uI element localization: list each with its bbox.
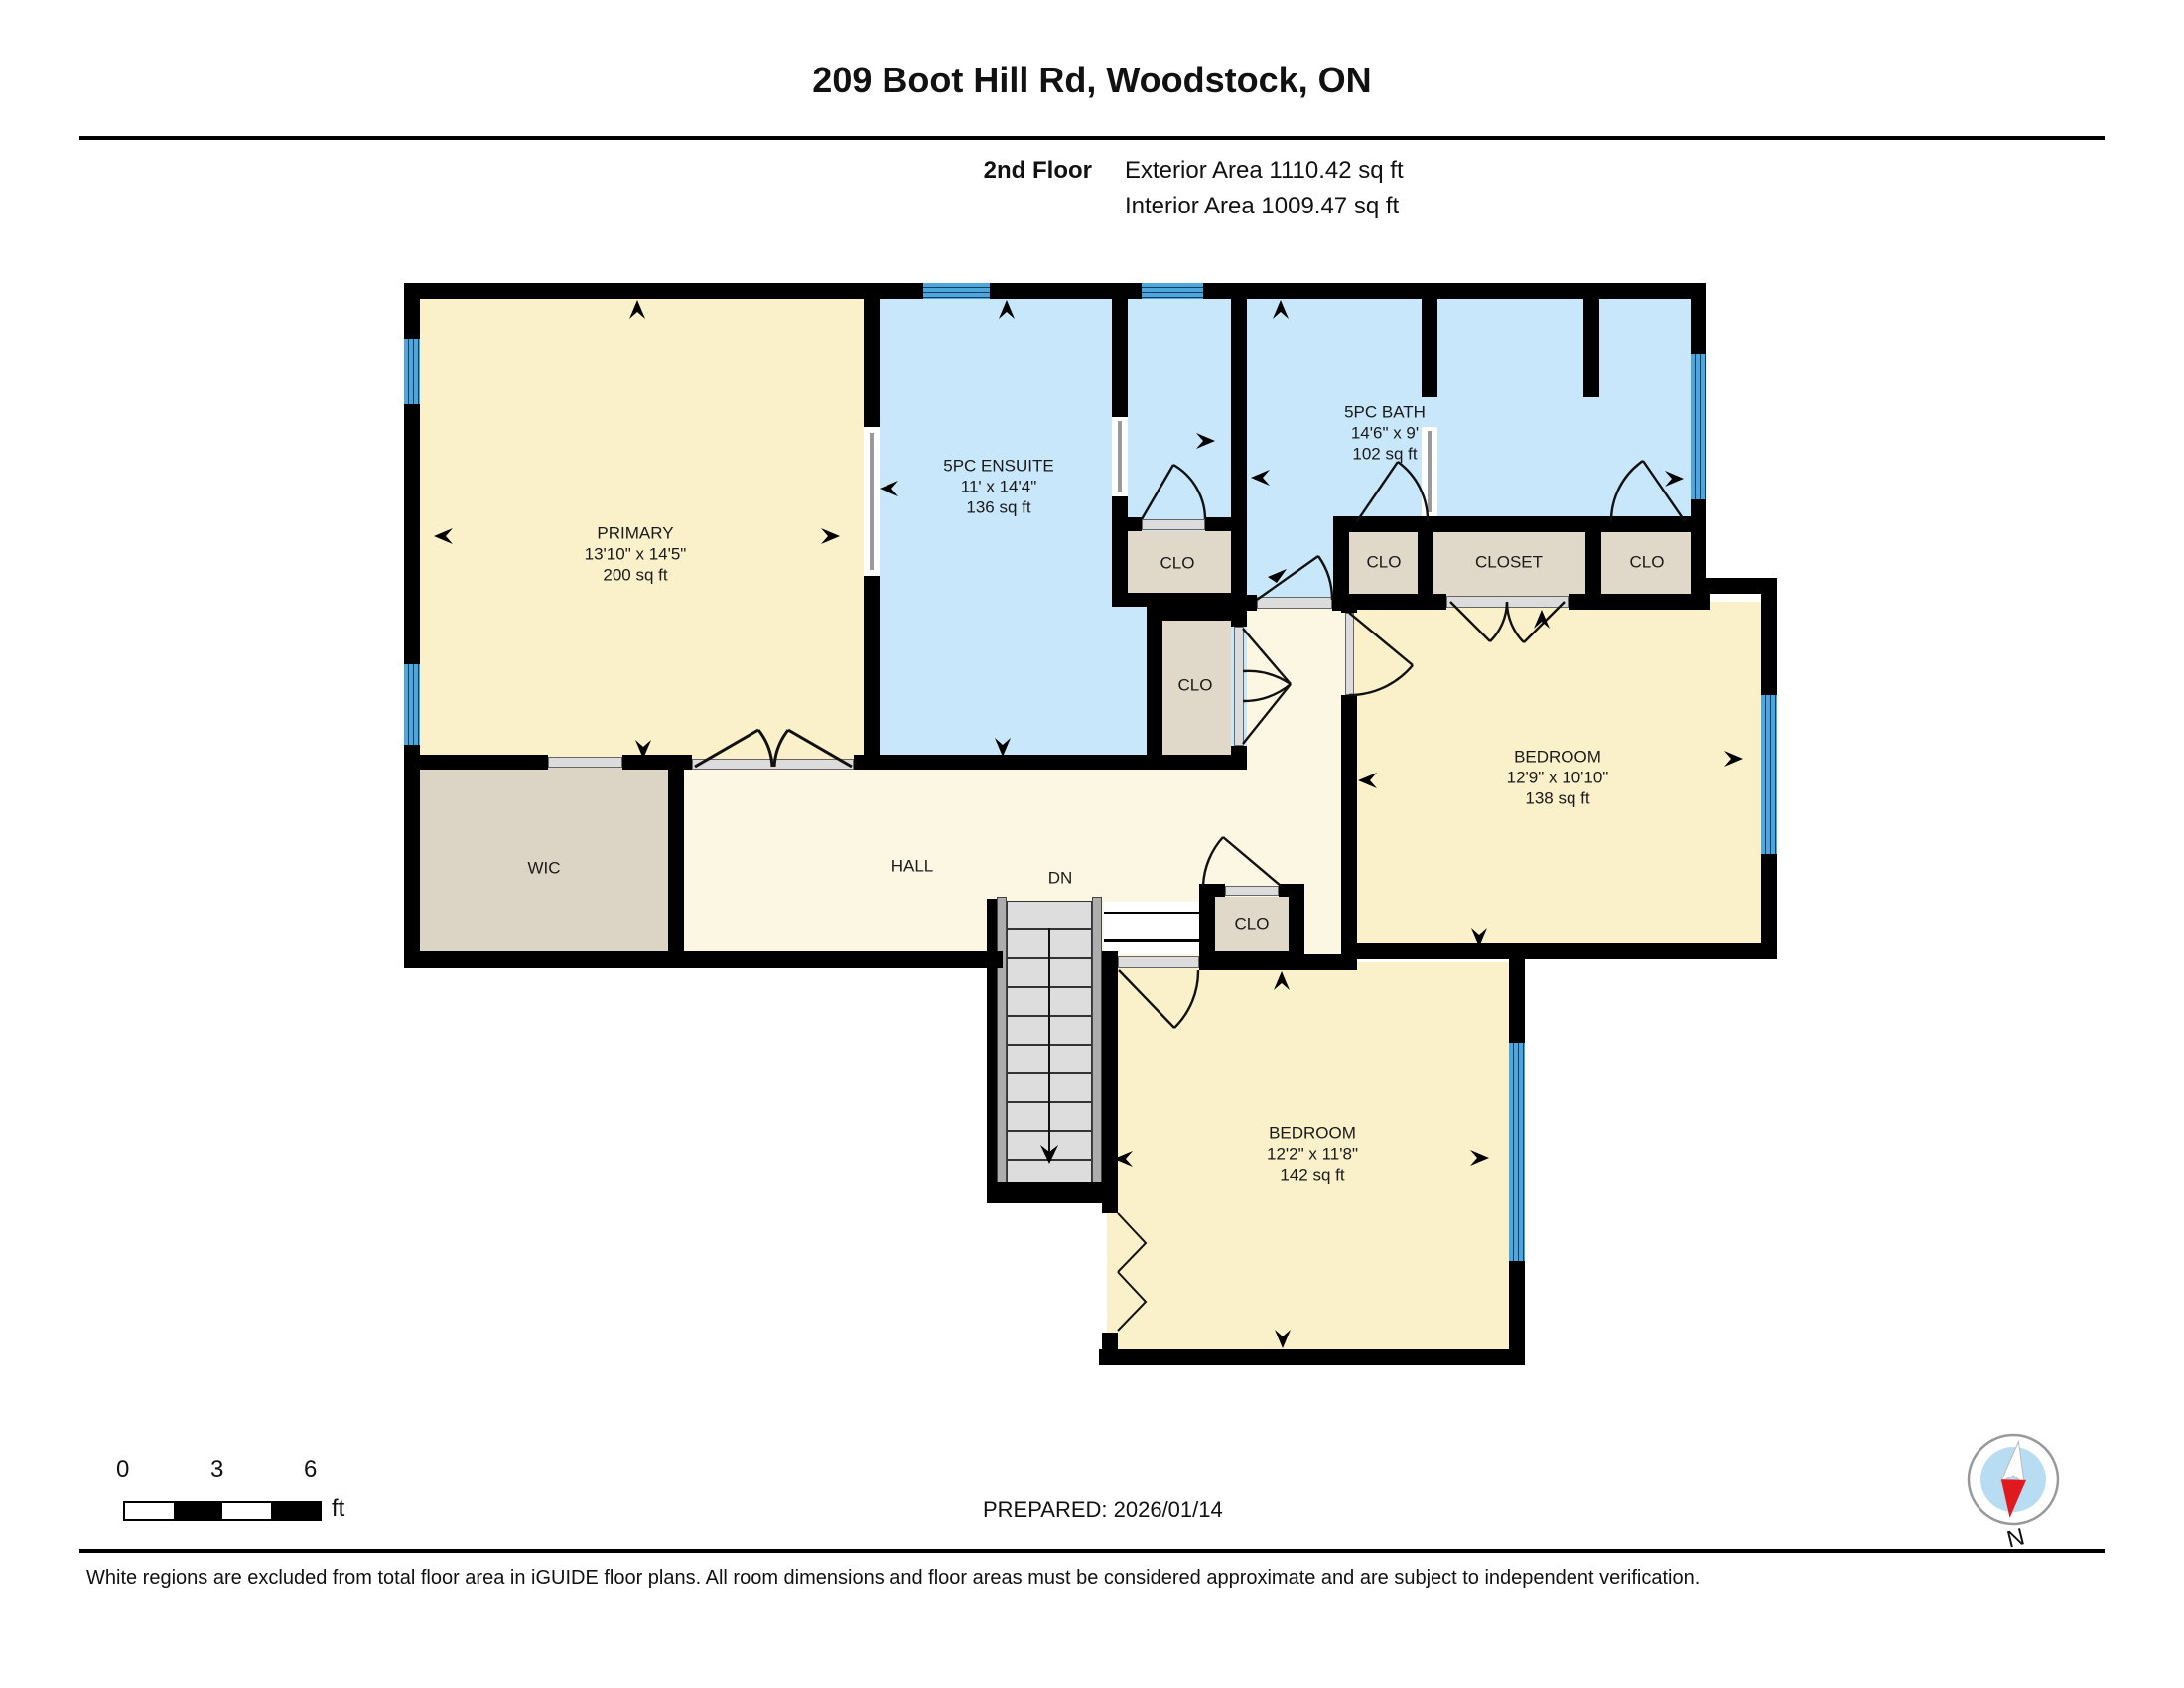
scale-segment [271,1503,320,1519]
stair-treads [1007,901,1092,1185]
stair-rail-right [1092,897,1102,1189]
wall [1341,943,1777,959]
scale-segment [125,1503,174,1519]
clo-right-label: CLO [1630,552,1665,573]
clo-left-label: CLO [1367,552,1402,573]
header-rule [79,136,2105,140]
wall [1341,594,1357,613]
wall [1231,746,1247,760]
wall [668,755,684,968]
wall [1569,594,1710,610]
primary-label: PRIMARY13'10" x 14'5"200 sq ft [585,523,687,586]
pocket-door [1428,431,1432,512]
scale-tick-3: 3 [210,1456,223,1483]
bedroom-bottom-label: BEDROOM12'2" x 11'8"142 sq ft [1267,1123,1358,1186]
window [404,339,420,404]
wall [1112,593,1247,607]
stairwell-opening [1104,902,1199,954]
window [1691,354,1706,499]
wall [404,283,1706,299]
wall [1102,1333,1118,1365]
ensuite-label: 5PC ENSUITE11' x 14'4"136 sq ft [943,456,1053,518]
floor-label: 2nd Floor [893,157,1092,185]
page-title: 209 Boot Hill Rd, Woodstock, ON [0,60,2184,101]
scale-unit: ft [332,1495,344,1523]
door-sill [1118,956,1199,968]
window [1509,1043,1525,1261]
wall [1583,299,1599,397]
clo-mid2-label: CLO [1178,675,1213,696]
door-sill [1345,613,1354,695]
wall [1099,1349,1525,1365]
stair-rail-left [997,897,1007,1189]
wall [1215,884,1225,897]
wall [1231,607,1247,627]
wall [1231,283,1247,607]
door-sill [548,757,622,768]
floor-plan-page: 209 Boot Hill Rd, Woodstock, ON 2nd Floo… [0,0,2184,1688]
wall [1304,954,1357,970]
stairwell-edge-line [1104,912,1199,914]
wall [987,899,997,1203]
wall [864,576,880,770]
exterior-area: Exterior Area 1110.42 sq ft [1125,157,1404,185]
hall-label: HALL [891,856,934,877]
scale-tick-6: 6 [304,1456,317,1483]
scale-segment [222,1503,271,1519]
clo-stairs-label: CLO [1235,914,1270,935]
clo-mid1-label: CLO [1160,553,1195,574]
wall [854,755,880,770]
prepared-date: PREPARED: 2026/01/14 [983,1497,1223,1523]
scale-bar [123,1501,322,1521]
wall [1205,517,1231,531]
wall [880,755,1247,770]
window [1142,283,1203,299]
wall [1279,884,1289,897]
scale-tick-0: 0 [116,1456,129,1483]
hall-column [1247,604,1345,763]
door-sill [1446,596,1569,608]
stairs-dn-label: DN [1048,868,1073,889]
door-sill [692,759,854,770]
stairwell-edge-line [1104,939,1199,942]
wall [412,755,548,770]
wall [1333,516,1706,532]
wall [1341,695,1357,959]
wall [404,951,1003,968]
bedroom-right-label: BEDROOM12'9" x 10'10"138 sq ft [1507,747,1609,809]
wall [1199,884,1215,954]
pocket-door [870,433,874,570]
door-sill [1234,627,1244,746]
wall [1112,299,1128,417]
window [1761,695,1777,854]
footer-rule [79,1549,2105,1553]
closet-label: CLOSET [1475,552,1543,573]
wic-label: WIC [527,858,560,879]
bath-room [1247,291,1699,524]
wall [1422,299,1437,397]
door-sill [1257,597,1332,609]
window [923,283,990,299]
disclaimer-text: White regions are excluded from total fl… [86,1567,2121,1590]
door-sill [1225,886,1279,896]
compass-icon [1964,1430,2063,1529]
window [404,664,420,745]
scale-segment [174,1503,222,1519]
wall [1102,951,1118,1213]
wall [1112,496,1128,517]
wall [987,1182,1114,1203]
door-sill [1142,519,1205,530]
pocket-door [1118,421,1122,492]
wall [1147,607,1162,760]
wall [1128,517,1142,531]
wall [1247,595,1257,611]
bath-vestibule [1247,524,1341,604]
wall [864,283,880,427]
bath-label: 5PC BATH14'6" x 9'102 sq ft [1344,402,1426,465]
wall [1289,884,1304,954]
interior-area: Interior Area 1009.47 sq ft [1125,193,1399,220]
